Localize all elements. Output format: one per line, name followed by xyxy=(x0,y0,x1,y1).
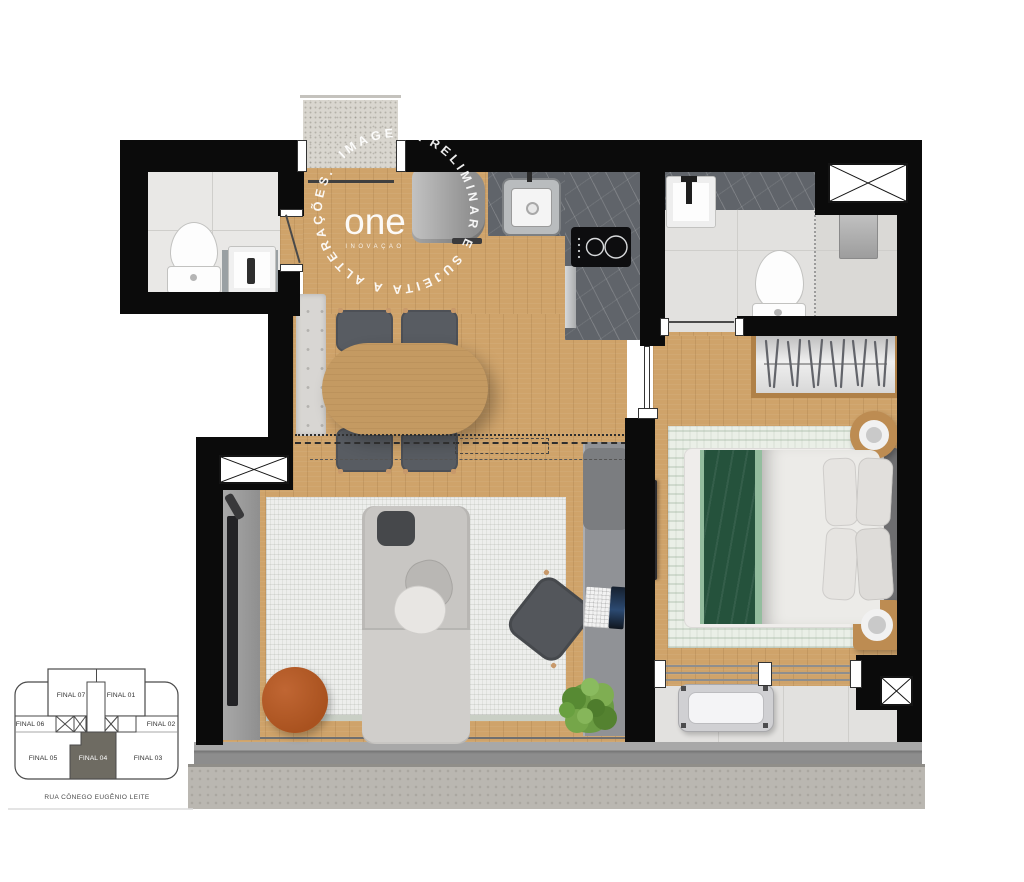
sofa-tray-table xyxy=(377,511,415,546)
shower-glass-partition xyxy=(814,208,816,332)
tile-grout xyxy=(783,686,784,742)
laptop xyxy=(583,581,626,630)
keyplan-label-final01: FINAL 01 xyxy=(107,692,136,699)
tile-grout xyxy=(148,230,280,231)
keyplan-label-final07: FINAL 07 xyxy=(57,692,86,699)
faucet xyxy=(247,258,255,284)
nightstand-lamp xyxy=(859,420,889,450)
facade-sill xyxy=(194,742,922,764)
bedroom-door-leaf xyxy=(644,346,650,410)
bath2-door-leaf xyxy=(668,321,734,323)
facade-concrete-ledge xyxy=(188,764,925,809)
sofa-chaise xyxy=(362,628,470,742)
wall xyxy=(120,140,148,314)
shaft-box xyxy=(880,676,913,706)
slider-post xyxy=(758,662,772,686)
ac-foot xyxy=(763,686,768,691)
wall xyxy=(196,700,223,744)
watermark: IMAGEM PRELIMINAR E SUJEITA A ALTERAÇÕES… xyxy=(270,121,480,331)
projection-outline xyxy=(455,438,549,454)
bed-pillow xyxy=(822,527,860,601)
floor-plan-canvas: IMAGEM PRELIMINAR E SUJEITA A ALTERAÇÕES… xyxy=(0,0,1024,882)
corridor-line xyxy=(300,95,401,98)
tv xyxy=(227,516,238,706)
wall xyxy=(625,685,655,742)
faucet-handle xyxy=(681,176,697,182)
keyplan-label-final03: FINAL 03 xyxy=(134,755,163,762)
ac-foot xyxy=(763,723,768,728)
watermark-logo-tagline: INOVAÇÃO xyxy=(345,243,404,250)
keyplan-core xyxy=(87,682,105,738)
bed-blanket xyxy=(700,450,762,624)
slider-post xyxy=(654,660,666,688)
bed-pillow xyxy=(822,457,859,527)
toilet-flush-button xyxy=(774,309,782,316)
ac-foot xyxy=(681,723,686,728)
watermark-logo: one xyxy=(344,201,406,242)
bed-pillow xyxy=(855,457,894,527)
nightstand-lamp xyxy=(861,609,893,641)
sink-drain xyxy=(526,202,539,215)
street-label: RUA CÔNEGO EUGÊNIO LEITE xyxy=(44,792,150,801)
slider-post xyxy=(850,660,862,688)
dishwasher-front xyxy=(565,266,576,328)
projection-line xyxy=(310,459,627,460)
wardrobe xyxy=(751,331,900,398)
tile-grout xyxy=(848,686,849,742)
hangers-icon xyxy=(756,336,895,393)
cooktop xyxy=(571,227,631,267)
wall xyxy=(897,140,922,742)
toilet xyxy=(755,250,804,310)
plant xyxy=(556,676,622,740)
keyplan-label-final06: FINAL 06 xyxy=(16,721,45,728)
key-plan: FINAL 07 FINAL 01 FINAL 06 FINAL 02 FINA… xyxy=(8,662,193,814)
projection-line xyxy=(295,434,627,436)
shaft-box xyxy=(828,163,908,203)
keyplan-label-final05: FINAL 05 xyxy=(29,755,58,762)
desk-cushion xyxy=(583,448,629,530)
bed-pillow xyxy=(855,527,895,601)
toilet-flush-button xyxy=(190,274,197,281)
wall xyxy=(625,418,655,685)
wall xyxy=(640,140,665,346)
ac-condenser-top xyxy=(688,692,764,724)
wall xyxy=(268,314,293,440)
dining-table xyxy=(322,343,488,435)
ac-foot xyxy=(681,686,686,691)
bedroom-door-jamb xyxy=(638,408,658,419)
keyplan-label-final04: FINAL 04 xyxy=(79,755,108,762)
keyplan-label-final02: FINAL 02 xyxy=(147,721,176,728)
wall xyxy=(737,316,920,336)
bath2-door-jamb xyxy=(735,318,744,336)
shaft-box xyxy=(219,455,289,484)
coffee-table xyxy=(262,667,328,733)
